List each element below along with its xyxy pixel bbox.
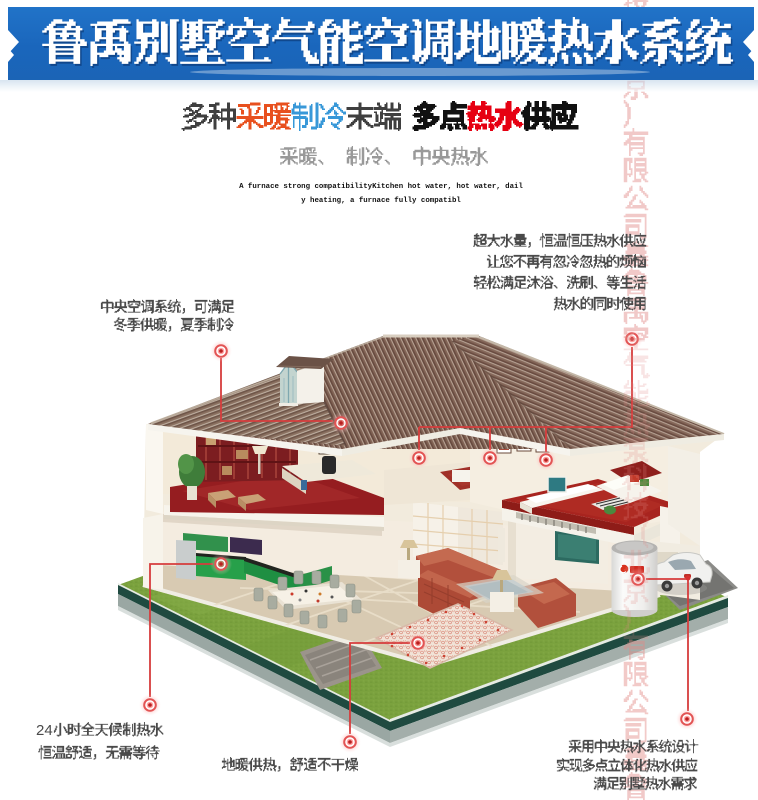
svg-text:A furnace strong compatibility: A furnace strong compatibilityKitchen ho… [239, 183, 523, 191]
svg-text:y heating, a furnace fully com: y heating, a furnace fully compatibl [301, 197, 461, 205]
svg-text:24: 24 [36, 722, 53, 739]
